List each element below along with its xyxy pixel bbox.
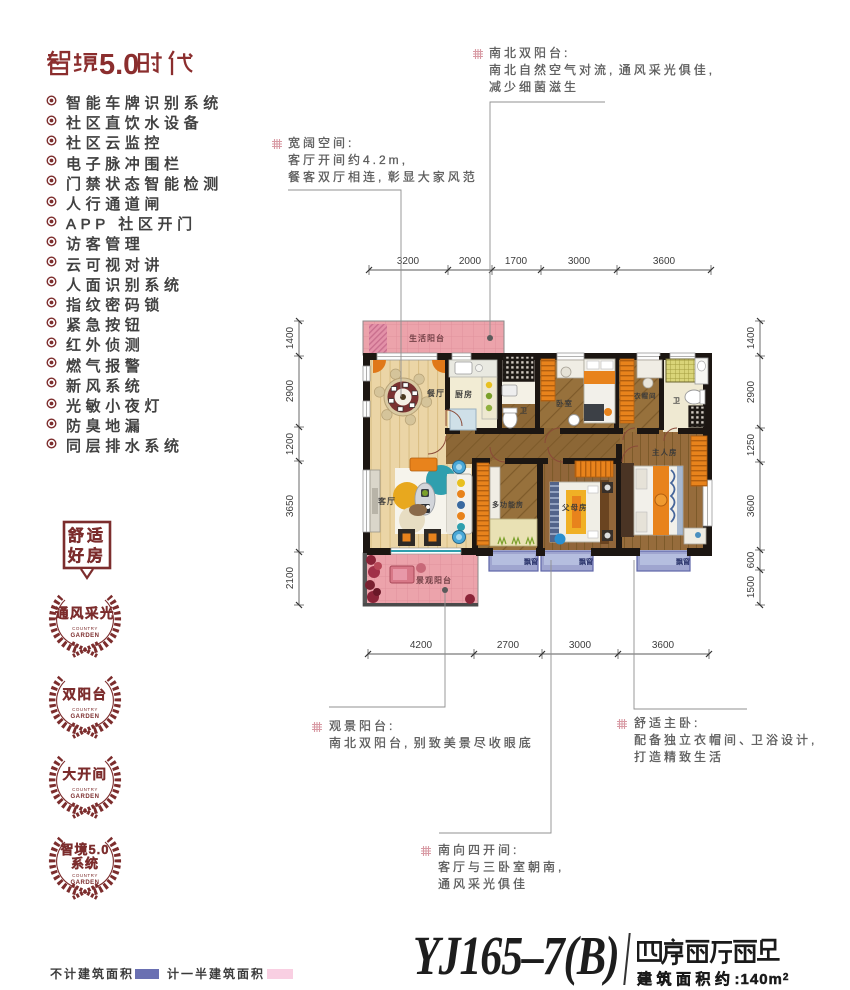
svg-text:4200: 4200 [410, 640, 433, 651]
svg-text:多功能房: 多功能房 [492, 500, 524, 509]
svg-text:客厅: 客厅 [378, 496, 396, 506]
svg-text:2700: 2700 [497, 640, 520, 651]
svg-text:3000: 3000 [569, 640, 592, 651]
svg-text:飘窗: 飘窗 [676, 557, 690, 566]
svg-text:2900: 2900 [746, 380, 757, 403]
svg-text:厨房: 厨房 [455, 389, 473, 399]
svg-text:1500: 1500 [746, 575, 757, 598]
svg-text:卫: 卫 [673, 397, 681, 405]
svg-text:600: 600 [746, 551, 757, 568]
svg-text:生活阳台: 生活阳台 [409, 333, 445, 343]
svg-text:3600: 3600 [746, 494, 757, 517]
svg-text:1250: 1250 [746, 433, 757, 456]
svg-text:3200: 3200 [397, 256, 420, 267]
svg-text:卧室: 卧室 [556, 398, 573, 408]
svg-text:飘窗: 飘窗 [524, 557, 538, 566]
svg-text:餐厅: 餐厅 [427, 389, 445, 398]
svg-text:2000: 2000 [459, 256, 482, 267]
svg-text:2900: 2900 [285, 379, 296, 402]
svg-text:主人房: 主人房 [652, 447, 678, 457]
svg-text:衣帽间: 衣帽间 [634, 391, 657, 400]
svg-text:3600: 3600 [653, 256, 676, 267]
svg-text:卫: 卫 [520, 407, 528, 415]
svg-text:1400: 1400 [746, 326, 757, 349]
svg-text:飘窗: 飘窗 [579, 557, 593, 566]
svg-text:1400: 1400 [285, 326, 296, 349]
svg-text:3650: 3650 [285, 494, 296, 517]
svg-text:2100: 2100 [285, 566, 296, 589]
svg-text:1200: 1200 [285, 432, 296, 455]
svg-text:3600: 3600 [652, 640, 675, 651]
svg-text:3000: 3000 [568, 256, 591, 267]
svg-text:父母房: 父母房 [562, 502, 588, 512]
svg-text:景观阳台: 景观阳台 [416, 575, 452, 585]
svg-text:1700: 1700 [505, 256, 528, 267]
